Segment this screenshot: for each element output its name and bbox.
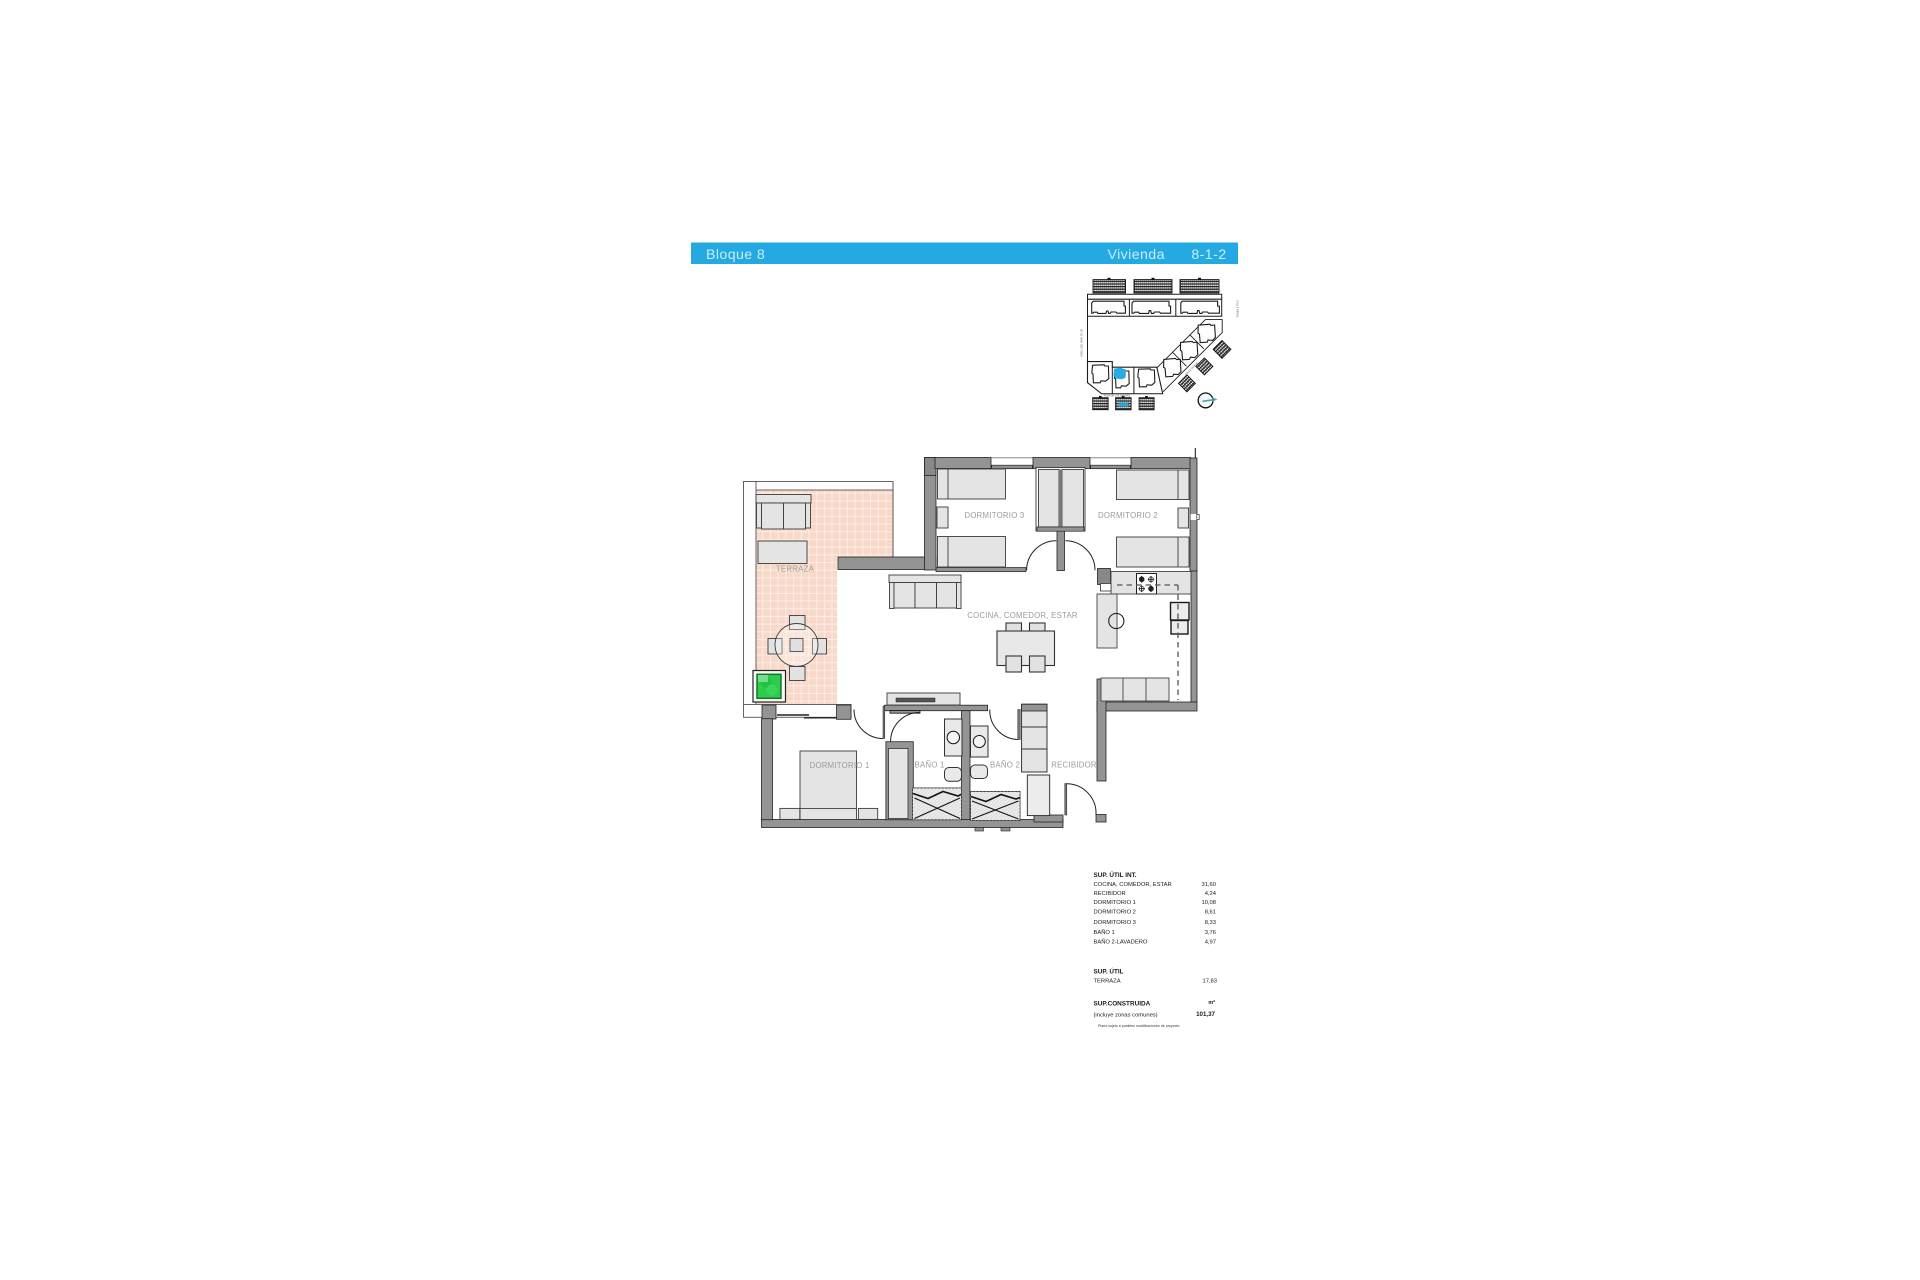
svg-text:TERRAZA: TERRAZA — [776, 565, 815, 574]
svg-text:DORMITORIO 1: DORMITORIO 1 — [1094, 900, 1136, 906]
svg-text:101,37: 101,37 — [1196, 1011, 1215, 1018]
svg-text:AVDA DE LAS SALINAS: AVDA DE LAS SALINAS — [1104, 395, 1131, 398]
svg-text:TERRAZA: TERRAZA — [1094, 979, 1121, 985]
svg-text:DORMITORIO 2: DORMITORIO 2 — [1094, 910, 1136, 916]
svg-text:DORMITORIO 2: DORMITORIO 2 — [1098, 511, 1158, 520]
svg-text:COCINA, COMEDOR, ESTAR: COCINA, COMEDOR, ESTAR — [967, 611, 1078, 620]
svg-text:BAÑO 1: BAÑO 1 — [915, 761, 945, 770]
svg-text:BAÑO 2-LAVADERO: BAÑO 2-LAVADERO — [1094, 939, 1148, 946]
svg-text:Bloque 8: Bloque 8 — [706, 247, 765, 263]
svg-text:31,60: 31,60 — [1201, 882, 1216, 888]
svg-text:DORMITORIO 3: DORMITORIO 3 — [1094, 920, 1136, 926]
svg-text:DORMITORIO 1: DORMITORIO 1 — [810, 761, 870, 770]
svg-text:DORMITORIO 3: DORMITORIO 3 — [964, 511, 1024, 520]
svg-text:10,08: 10,08 — [1201, 900, 1216, 906]
svg-text:SUP. ÚTIL: SUP. ÚTIL — [1094, 967, 1124, 976]
svg-text:BAÑO 1: BAÑO 1 — [1094, 929, 1115, 936]
svg-text:BAÑO 2: BAÑO 2 — [990, 761, 1020, 770]
svg-text:4,97: 4,97 — [1205, 940, 1216, 946]
svg-text:8,61: 8,61 — [1205, 910, 1216, 916]
svg-text:8-1-2: 8-1-2 — [1191, 247, 1226, 263]
svg-text:3,76: 3,76 — [1205, 930, 1216, 936]
svg-text:COCINA, COMEDOR, ESTAR: COCINA, COMEDOR, ESTAR — [1094, 882, 1172, 888]
svg-text:m²: m² — [1208, 1000, 1215, 1006]
svg-text:SUP.CONSTRUIDA: SUP.CONSTRUIDA — [1094, 1001, 1151, 1008]
svg-text:AVDA. DEL MAR SN 28: AVDA. DEL MAR SN 28 — [1080, 329, 1084, 357]
svg-text:4,24: 4,24 — [1205, 891, 1217, 897]
svg-text:Plano sujeto a posibles modifi: Plano sujeto a posibles modificaciones d… — [1098, 1024, 1180, 1028]
svg-text:17,83: 17,83 — [1202, 979, 1217, 985]
svg-text:CALLE PERAL: CALLE PERAL — [1236, 300, 1240, 318]
svg-text:SUP. ÚTIL INT.: SUP. ÚTIL INT. — [1094, 870, 1137, 879]
svg-text:RECIBIDOR: RECIBIDOR — [1051, 761, 1097, 770]
svg-text:Vivienda: Vivienda — [1108, 247, 1165, 263]
svg-text:RECIBIDOR: RECIBIDOR — [1094, 891, 1126, 897]
svg-text:(incluye zonas comunes): (incluye zonas comunes) — [1094, 1012, 1158, 1018]
svg-text:8,33: 8,33 — [1205, 920, 1216, 926]
